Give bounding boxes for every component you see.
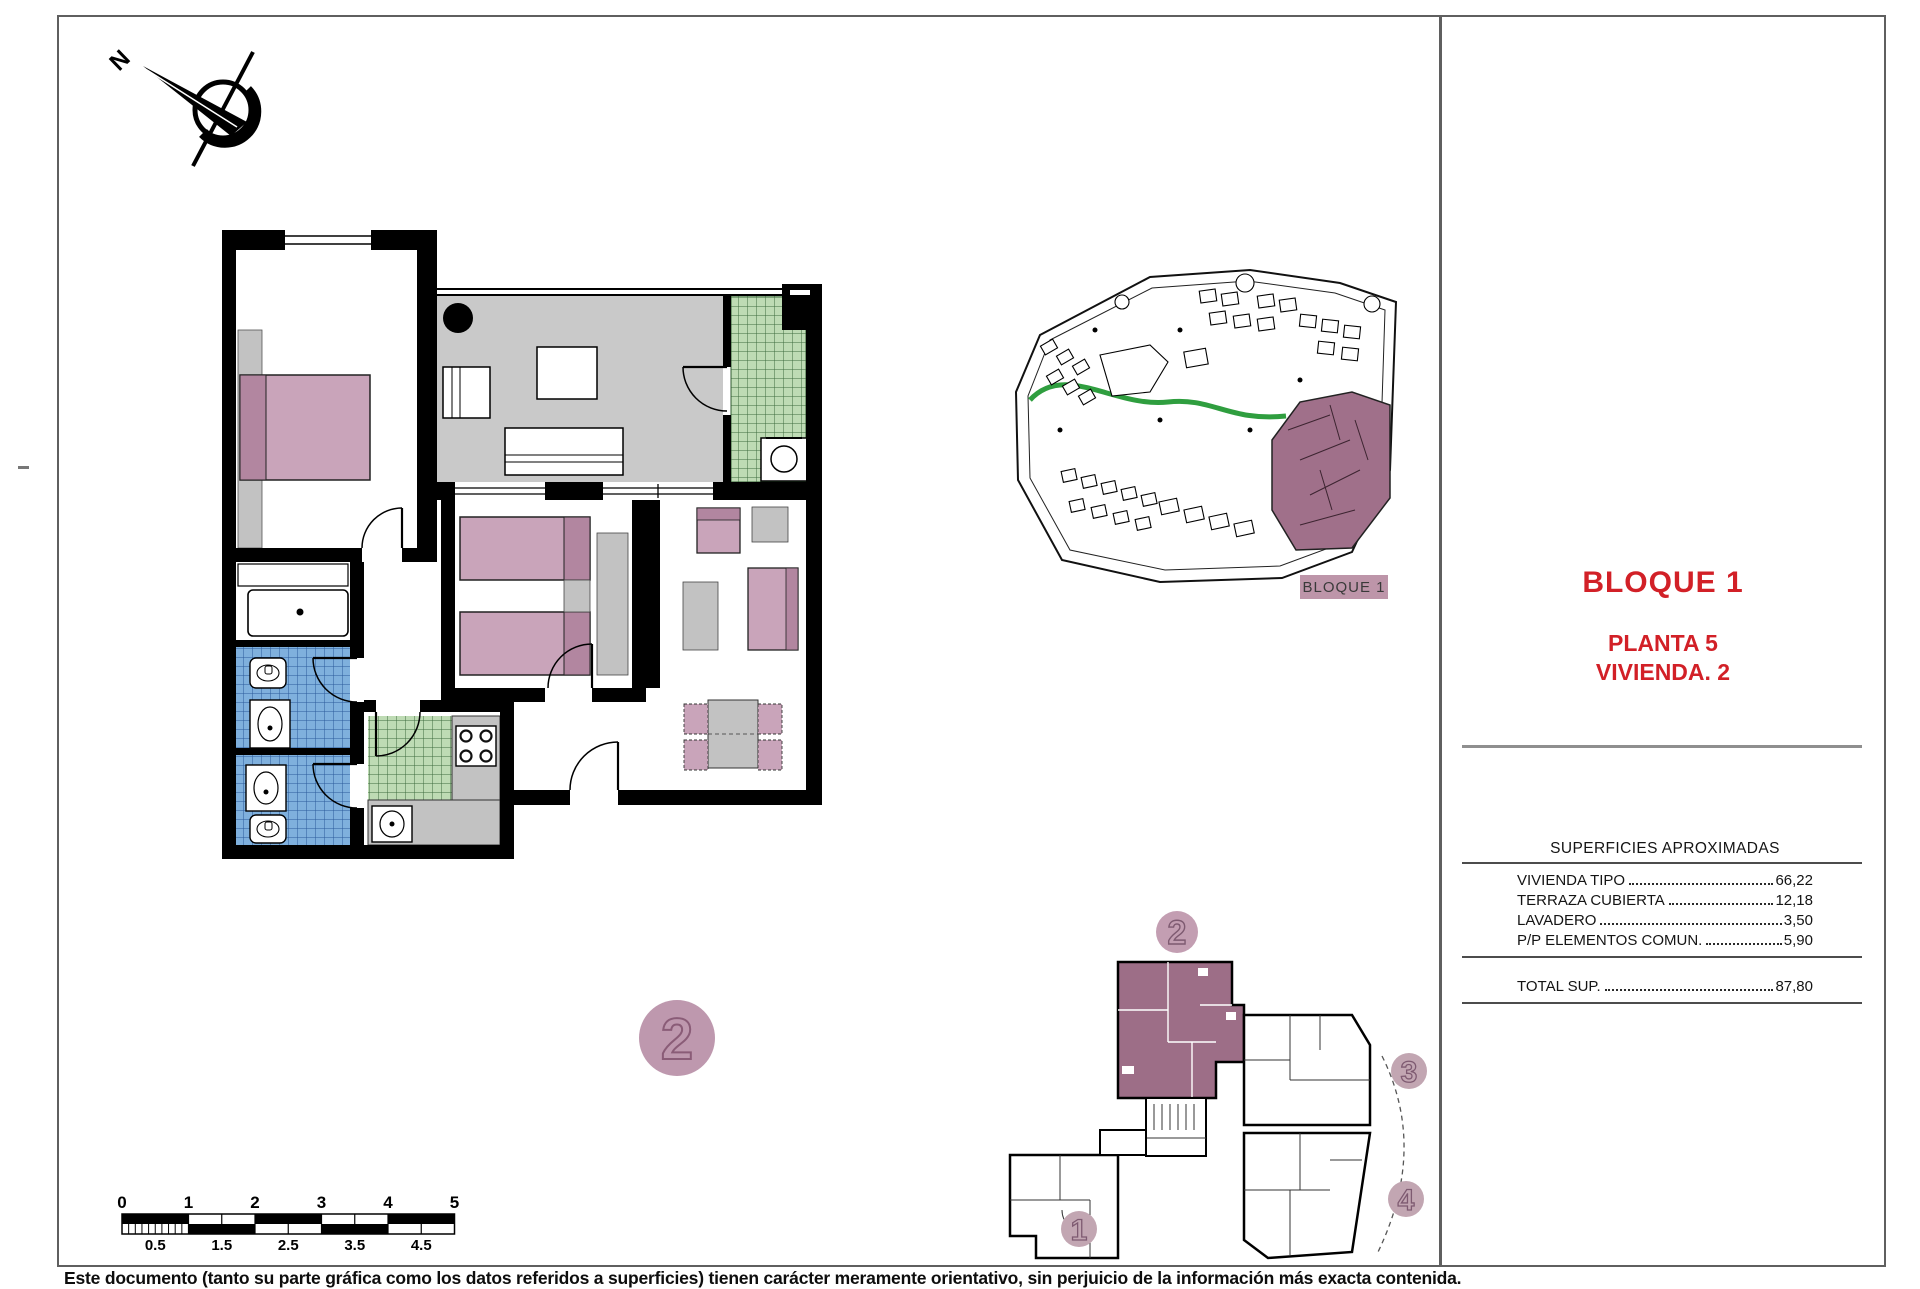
apartment-floor-plan: 2 (215, 222, 835, 1082)
floor-title: PLANTA 5 (1480, 630, 1846, 657)
table-rule (1462, 956, 1862, 958)
areas-table-header: SUPERFICIES APROXIMADAS (1517, 840, 1813, 858)
title-block: BLOQUE 1 PLANTA 5 VIVIENDA. 2 (1480, 566, 1846, 686)
key-unit-number-1: 1 (1071, 1214, 1088, 1247)
svg-text:0.5: 0.5 (145, 1237, 166, 1254)
block-label: BLOQUE 1 (1302, 579, 1385, 596)
registration-mark (18, 466, 29, 469)
key-plan: 2 3 4 1 (985, 905, 1440, 1275)
key-unit-3 (1244, 1015, 1370, 1125)
svg-text:0: 0 (117, 1193, 126, 1212)
svg-text:1.5: 1.5 (211, 1237, 232, 1254)
wardrobe (597, 533, 628, 675)
table-total-row: TOTAL SUP.87,80 (1517, 978, 1813, 998)
table-rule (1462, 862, 1862, 864)
block-title: BLOQUE 1 (1480, 566, 1846, 600)
svg-text:4: 4 (383, 1193, 393, 1212)
unit-badge: 2 (639, 1000, 715, 1076)
table-row: P/P ELEMENTOS COMUN.5,90 (1517, 932, 1813, 952)
nightstand (564, 580, 590, 612)
scale-bar: 0 1 2 3 4 5 0.5 1.5 2.5 3.5 4.5 (95, 1192, 475, 1254)
svg-text:1: 1 (184, 1193, 193, 1212)
scale-major-labels: 0 1 2 3 4 5 (117, 1193, 459, 1212)
bedroom2-furniture (460, 517, 628, 675)
svg-text:2: 2 (250, 1193, 259, 1212)
table-row: TERRAZA CUBIERTA12,18 (1517, 892, 1813, 912)
key-unit-2 (1118, 962, 1244, 1098)
washing-machine (761, 438, 807, 481)
key-stair-core (1146, 1098, 1206, 1156)
key-unit-1 (1010, 1155, 1118, 1258)
unit-title: VIVIENDA. 2 (1480, 659, 1846, 686)
table-row: VIVIENDA TIPO66,22 (1517, 872, 1813, 892)
terrace-railing (437, 289, 782, 295)
terrace-chair (443, 367, 490, 418)
key-unit-number-4: 4 (1398, 1184, 1415, 1217)
svg-text:3.5: 3.5 (344, 1237, 365, 1254)
svg-text:5: 5 (450, 1193, 459, 1212)
key-unit-4 (1244, 1133, 1370, 1258)
column (443, 303, 473, 333)
unit-badge-number: 2 (661, 1007, 693, 1072)
plan-sheet: { "title_block": { "block": "BLOQUE 1", … (0, 0, 1920, 1280)
key-unit-number-2: 2 (1168, 914, 1187, 952)
terrace-table (537, 347, 597, 399)
side-table (752, 507, 788, 542)
laundry-fixtures (761, 438, 807, 481)
site-plan: BLOQUE 1 (1005, 262, 1405, 612)
disclaimer-text: Este documento (tanto su parte gráfica c… (64, 1268, 1864, 1289)
north-compass: N (95, 38, 280, 178)
living-furniture (683, 507, 798, 770)
terrace-bench (505, 428, 623, 475)
closet (238, 564, 348, 586)
svg-text:2.5: 2.5 (278, 1237, 299, 1254)
highlighted-block (1272, 392, 1390, 550)
coffee-table (683, 582, 718, 650)
north-label: N (104, 45, 135, 76)
panel-separator-line (1462, 745, 1862, 748)
key-unit-number-3: 3 (1401, 1056, 1418, 1089)
svg-text:4.5: 4.5 (411, 1237, 432, 1254)
bedroom1-furniture (238, 330, 370, 586)
table-row: LAVADERO3,50 (1517, 912, 1813, 932)
scale-minor-labels: 0.5 1.5 2.5 3.5 4.5 (145, 1237, 432, 1254)
svg-text:3: 3 (317, 1193, 326, 1212)
table-rule (1462, 1002, 1862, 1004)
